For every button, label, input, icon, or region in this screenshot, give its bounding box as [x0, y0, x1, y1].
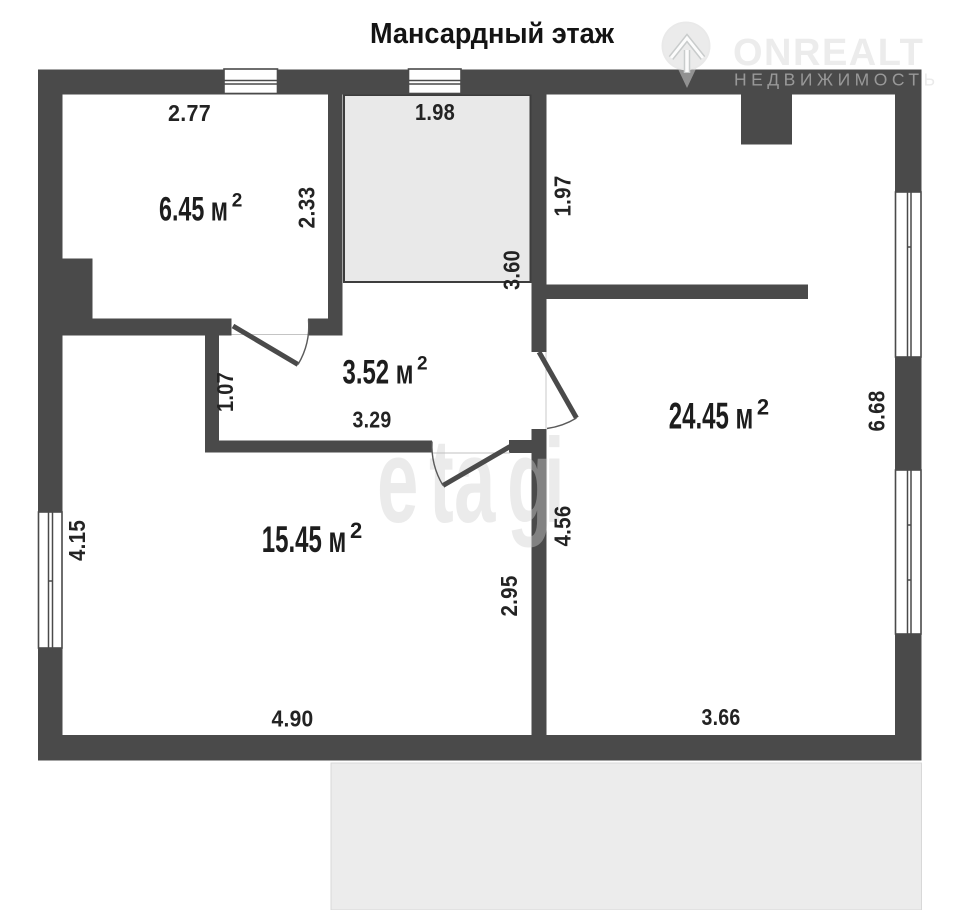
svg-text:2.95: 2.95 — [496, 576, 522, 617]
svg-text:15.45 м: 15.45 м — [262, 519, 347, 560]
svg-text:4.90: 4.90 — [272, 706, 314, 732]
svg-text:ONREALT: ONREALT — [733, 32, 924, 74]
svg-text:6.68: 6.68 — [864, 391, 890, 432]
svg-text:a: a — [454, 415, 496, 548]
svg-text:2: 2 — [417, 354, 428, 375]
svg-text:3.66: 3.66 — [702, 704, 741, 730]
svg-text:6.45 м: 6.45 м — [159, 190, 228, 228]
svg-text:4.56: 4.56 — [550, 506, 576, 547]
svg-text:1.98: 1.98 — [415, 99, 455, 125]
svg-text:3.60: 3.60 — [499, 250, 525, 290]
svg-text:3.29: 3.29 — [353, 407, 392, 433]
svg-text:3.52 м: 3.52 м — [343, 353, 414, 391]
svg-text:1.97: 1.97 — [550, 176, 576, 217]
svg-text:e: e — [377, 415, 418, 548]
svg-text:1.07: 1.07 — [212, 372, 238, 412]
svg-text:2: 2 — [757, 395, 769, 420]
svg-text:2: 2 — [350, 518, 362, 543]
svg-text:2: 2 — [232, 191, 243, 212]
svg-text:2.33: 2.33 — [294, 187, 320, 229]
svg-text:24.45 м: 24.45 м — [669, 396, 754, 437]
svg-text:НЕДВИЖИМОСТЬ: НЕДВИЖИМОСТЬ — [734, 70, 940, 90]
svg-text:4.15: 4.15 — [64, 520, 90, 561]
svg-text:2.77: 2.77 — [168, 100, 211, 126]
svg-text:Мансардный этаж: Мансардный этаж — [370, 18, 614, 50]
